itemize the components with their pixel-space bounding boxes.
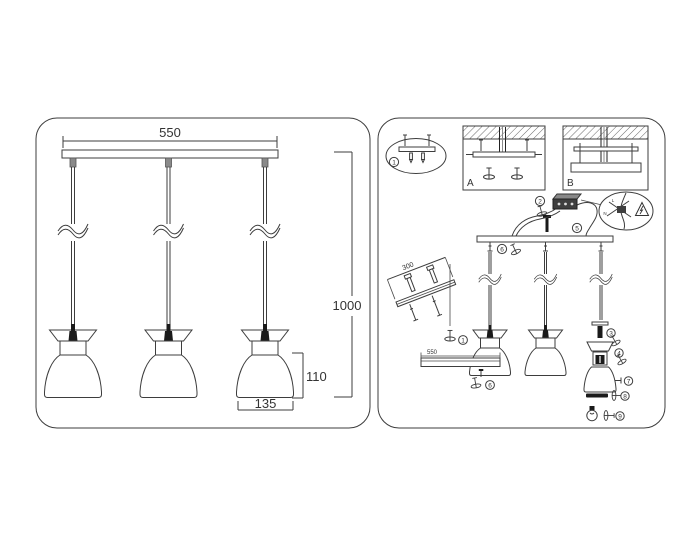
step-1-badge: 1 (389, 157, 398, 166)
dimension-drop-height: 1000 (333, 152, 362, 397)
right-panel: 1 A (378, 118, 665, 428)
option-a-label: A (467, 178, 474, 189)
cord-break-icon (479, 274, 502, 284)
dimension-rail-length: 300 (385, 250, 453, 299)
svg-text:5: 5 (575, 225, 579, 232)
assembled-shade-2 (525, 325, 566, 376)
canopy-bar (477, 236, 613, 242)
svg-text:9: 9 (618, 413, 622, 420)
cord-3 (250, 158, 280, 326)
anchor-kit-callout: 1 (386, 135, 446, 174)
terminal-detail (617, 206, 626, 213)
step-8-badge: 8 (621, 392, 629, 401)
dim-300-label: 300 (401, 261, 415, 272)
assembly-cord-1 (479, 252, 502, 326)
screwdriver-icon (508, 243, 521, 256)
assembled-shade-1 (470, 325, 511, 376)
svg-text:1: 1 (392, 159, 396, 166)
pendant-shade-3 (237, 324, 294, 398)
step-2-badge: 2 (535, 196, 544, 205)
cord-1 (58, 158, 88, 326)
fixing-screw (407, 303, 418, 321)
dim-1000-label: 1000 (333, 298, 362, 313)
cord-break-icon (250, 224, 280, 238)
screwdriver-icon (604, 411, 614, 421)
svg-text:2: 2 (538, 198, 542, 205)
threaded-nipple (598, 326, 603, 338)
option-b-label: B (567, 178, 574, 189)
dimension-canopy-width: 550 (63, 125, 277, 148)
mounting-option-b: B (563, 126, 648, 190)
standoff-screw (427, 265, 439, 284)
step-1-badge: 1 (459, 336, 468, 345)
ceiling-hatch (463, 126, 545, 139)
svg-text:1: 1 (461, 337, 465, 344)
ceiling-hatch (563, 126, 648, 139)
cord-break-icon (154, 224, 184, 238)
step-9-badge: 9 (616, 412, 624, 421)
hanging-cords (58, 158, 280, 326)
dim-550-label: 550 (159, 125, 181, 140)
assembly-cord-3 (590, 252, 613, 320)
svg-text:8: 8 (623, 393, 627, 400)
mounting-rail (574, 147, 638, 151)
diagram-canvas: 550 (0, 0, 700, 544)
svg-text:6: 6 (488, 382, 492, 389)
exploded-shade (584, 367, 616, 392)
dim-135-label: 135 (255, 396, 277, 411)
shade-cap (587, 342, 613, 351)
cord-break-icon (534, 274, 557, 284)
cord-break-icon (590, 274, 613, 284)
fixing-screw (430, 295, 442, 316)
cord-break-icon (58, 224, 88, 238)
dim-550-small-label: 550 (427, 350, 438, 356)
instruction-sheet: 550 (0, 0, 700, 544)
terminal-block (553, 194, 581, 209)
wiring-step: 2 5 (512, 194, 597, 236)
supply-cable (516, 211, 560, 236)
cord-grip-flange (592, 322, 608, 325)
left-panel: 550 (36, 118, 370, 428)
svg-text:6: 6 (500, 246, 504, 253)
dimension-shade-diameter: 135 (238, 396, 293, 411)
lamp-socket (593, 352, 607, 365)
cord-grip-screw (599, 242, 604, 251)
cord-2 (154, 158, 184, 326)
ceiling-bar (62, 150, 278, 158)
main-assembly: 6 (470, 236, 614, 376)
exploded-pendant: 3 4 7 (584, 322, 633, 421)
screwdriver-icon (445, 330, 455, 341)
dimension-shade-height: 110 (292, 353, 327, 398)
dim-110-label: 110 (306, 369, 327, 384)
mounting-rail (473, 152, 535, 157)
shade-fixing-screw (615, 378, 621, 384)
cord-grip-screw (543, 242, 548, 251)
step-7-badge: 7 (624, 377, 632, 386)
svg-text:7: 7 (627, 378, 631, 385)
retaining-ring (586, 394, 608, 398)
bulb-icon (587, 406, 597, 421)
neutral-wire-label: N (603, 211, 606, 216)
mounting-option-a: A (463, 126, 545, 190)
pendant-shade-1 (45, 324, 102, 398)
step-6-badge: 6 (497, 244, 506, 253)
assembly-cord-2 (534, 252, 557, 326)
rail-exploded-view: 300 (385, 250, 468, 344)
step-3-badge: 3 (607, 329, 615, 338)
standoff-screw (404, 274, 416, 293)
pendant-shade-2 (140, 324, 197, 398)
cable-clamp-screw (546, 218, 549, 232)
canopy-plate (571, 163, 641, 172)
svg-text:4: 4 (617, 350, 621, 357)
cord-grip-screw (488, 242, 493, 251)
step-6-badge: 6 (486, 381, 495, 390)
screwdriver-icon (470, 377, 481, 389)
canopy-bar (421, 358, 500, 367)
step-5-badge: 5 (572, 223, 581, 232)
